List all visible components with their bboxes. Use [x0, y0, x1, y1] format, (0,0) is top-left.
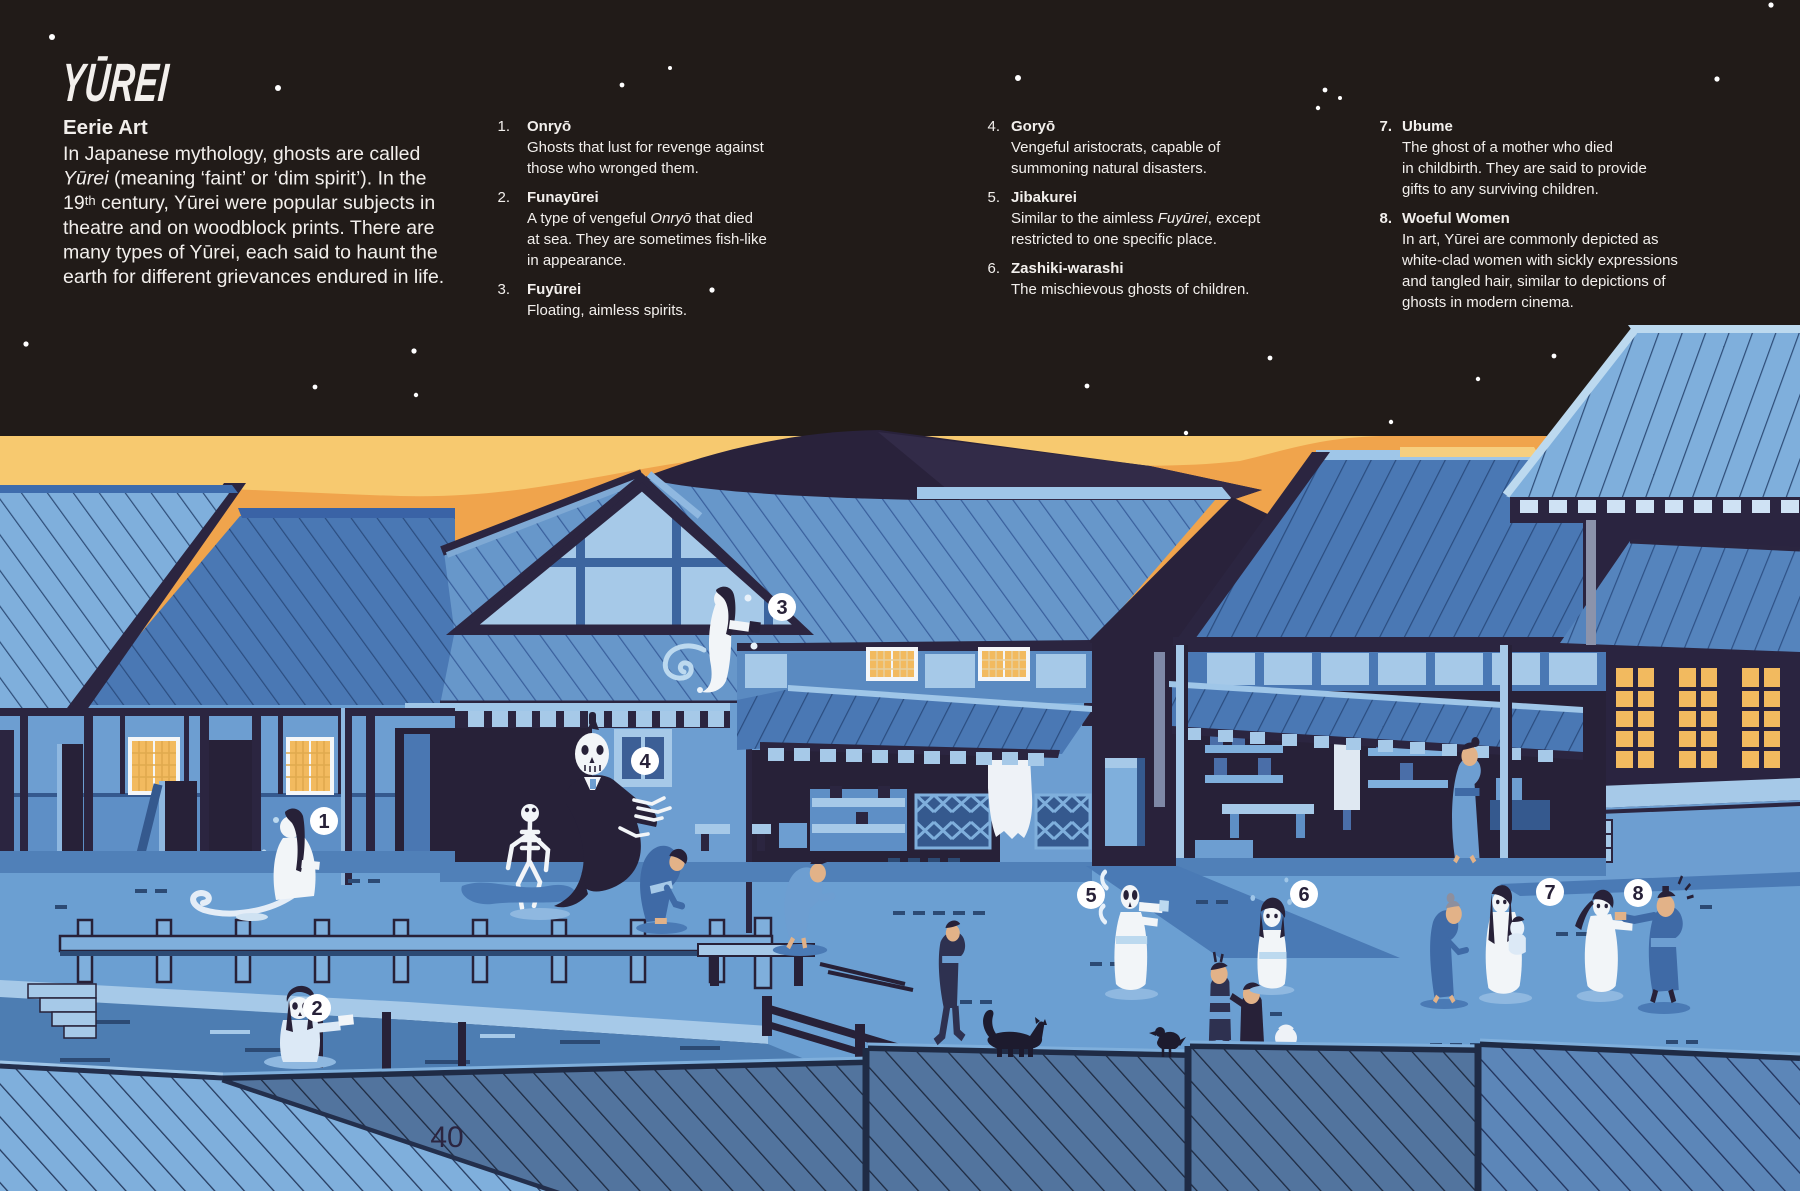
svg-text:many types of Yūrei, each said: many types of Yūrei, each said to haunt … [63, 241, 438, 263]
svg-text:6: 6 [1298, 884, 1309, 906]
svg-text:The ghost of a mother who died: The ghost of a mother who died [1402, 139, 1613, 156]
svg-text:summoning natural disasters.: summoning natural disasters. [1011, 160, 1207, 177]
svg-text:Jibakurei: Jibakurei [1011, 189, 1077, 206]
svg-text:4.: 4. [987, 118, 1000, 135]
svg-text:40: 40 [430, 1121, 463, 1154]
svg-text:7: 7 [1544, 882, 1555, 904]
svg-text:those who wronged them.: those who wronged them. [527, 160, 699, 177]
svg-text:YŪREI: YŪREI [59, 52, 172, 113]
svg-text:in childbirth. They are said t: in childbirth. They are said to provide [1402, 160, 1647, 177]
svg-text:19th century, Yūrei were popul: 19th century, Yūrei were popular subject… [63, 192, 435, 214]
svg-text:8: 8 [1632, 883, 1643, 905]
svg-text:in appearance.: in appearance. [527, 252, 626, 269]
svg-text:Yūrei (meaning ‘faint’ or ‘dim: Yūrei (meaning ‘faint’ or ‘dim spirit’).… [63, 168, 426, 190]
svg-text:3: 3 [776, 597, 787, 619]
svg-text:Woeful Women: Woeful Women [1402, 210, 1510, 227]
svg-text:1.: 1. [497, 118, 510, 135]
svg-text:theatre and on woodblock print: theatre and on woodblock prints. There a… [63, 217, 434, 239]
svg-text:5: 5 [1085, 885, 1096, 907]
svg-text:The mischievous ghosts of chil: The mischievous ghosts of children. [1011, 281, 1249, 298]
svg-text:ghosts in modern cinema.: ghosts in modern cinema. [1402, 294, 1574, 311]
svg-text:earth for different grievances: earth for different grievances endured i… [63, 266, 444, 288]
svg-text:Floating, aimless spirits.: Floating, aimless spirits. [527, 302, 687, 319]
svg-text:In art, Yūrei are commonly dep: In art, Yūrei are commonly depicted as [1402, 231, 1659, 248]
svg-text:restricted to one specific pla: restricted to one specific place. [1011, 231, 1217, 248]
svg-text:7.: 7. [1379, 118, 1392, 135]
svg-text:A type of vengeful Onryō that: A type of vengeful Onryō that died [527, 210, 753, 227]
svg-text:8.: 8. [1379, 210, 1392, 227]
svg-text:gifts to any surviving childre: gifts to any surviving children. [1402, 181, 1599, 198]
svg-text:and tangled hair, similar to d: and tangled hair, similar to depictions … [1402, 273, 1666, 290]
svg-text:at sea. They are sometimes fis: at sea. They are sometimes fish-like [527, 231, 767, 248]
svg-text:white-clad women with sickly e: white-clad women with sickly expressions [1401, 252, 1678, 269]
svg-text:5.: 5. [987, 189, 1000, 206]
svg-text:Vengeful aristocrats, capable: Vengeful aristocrats, capable of [1011, 139, 1221, 156]
svg-text:6.: 6. [987, 260, 1000, 277]
svg-text:Ubume: Ubume [1402, 118, 1453, 135]
svg-text:Fuyūrei: Fuyūrei [527, 281, 581, 298]
svg-text:1: 1 [318, 811, 329, 833]
svg-text:3.: 3. [497, 281, 510, 298]
svg-text:Eerie Art: Eerie Art [63, 116, 148, 139]
svg-text:Ghosts that lust for revenge a: Ghosts that lust for revenge against [527, 139, 765, 156]
svg-text:Funayūrei: Funayūrei [527, 189, 599, 206]
svg-text:Zashiki-warashi: Zashiki-warashi [1011, 260, 1124, 277]
svg-text:Goryō: Goryō [1011, 118, 1055, 135]
svg-text:2.: 2. [497, 189, 510, 206]
svg-text:4: 4 [639, 751, 651, 773]
svg-text:Similar to the aimless Fuyūrei: Similar to the aimless Fuyūrei, except [1011, 210, 1261, 227]
svg-text:2: 2 [311, 998, 322, 1020]
svg-text:In Japanese mythology, ghosts: In Japanese mythology, ghosts are called [63, 143, 420, 165]
svg-text:Onryō: Onryō [527, 118, 571, 135]
